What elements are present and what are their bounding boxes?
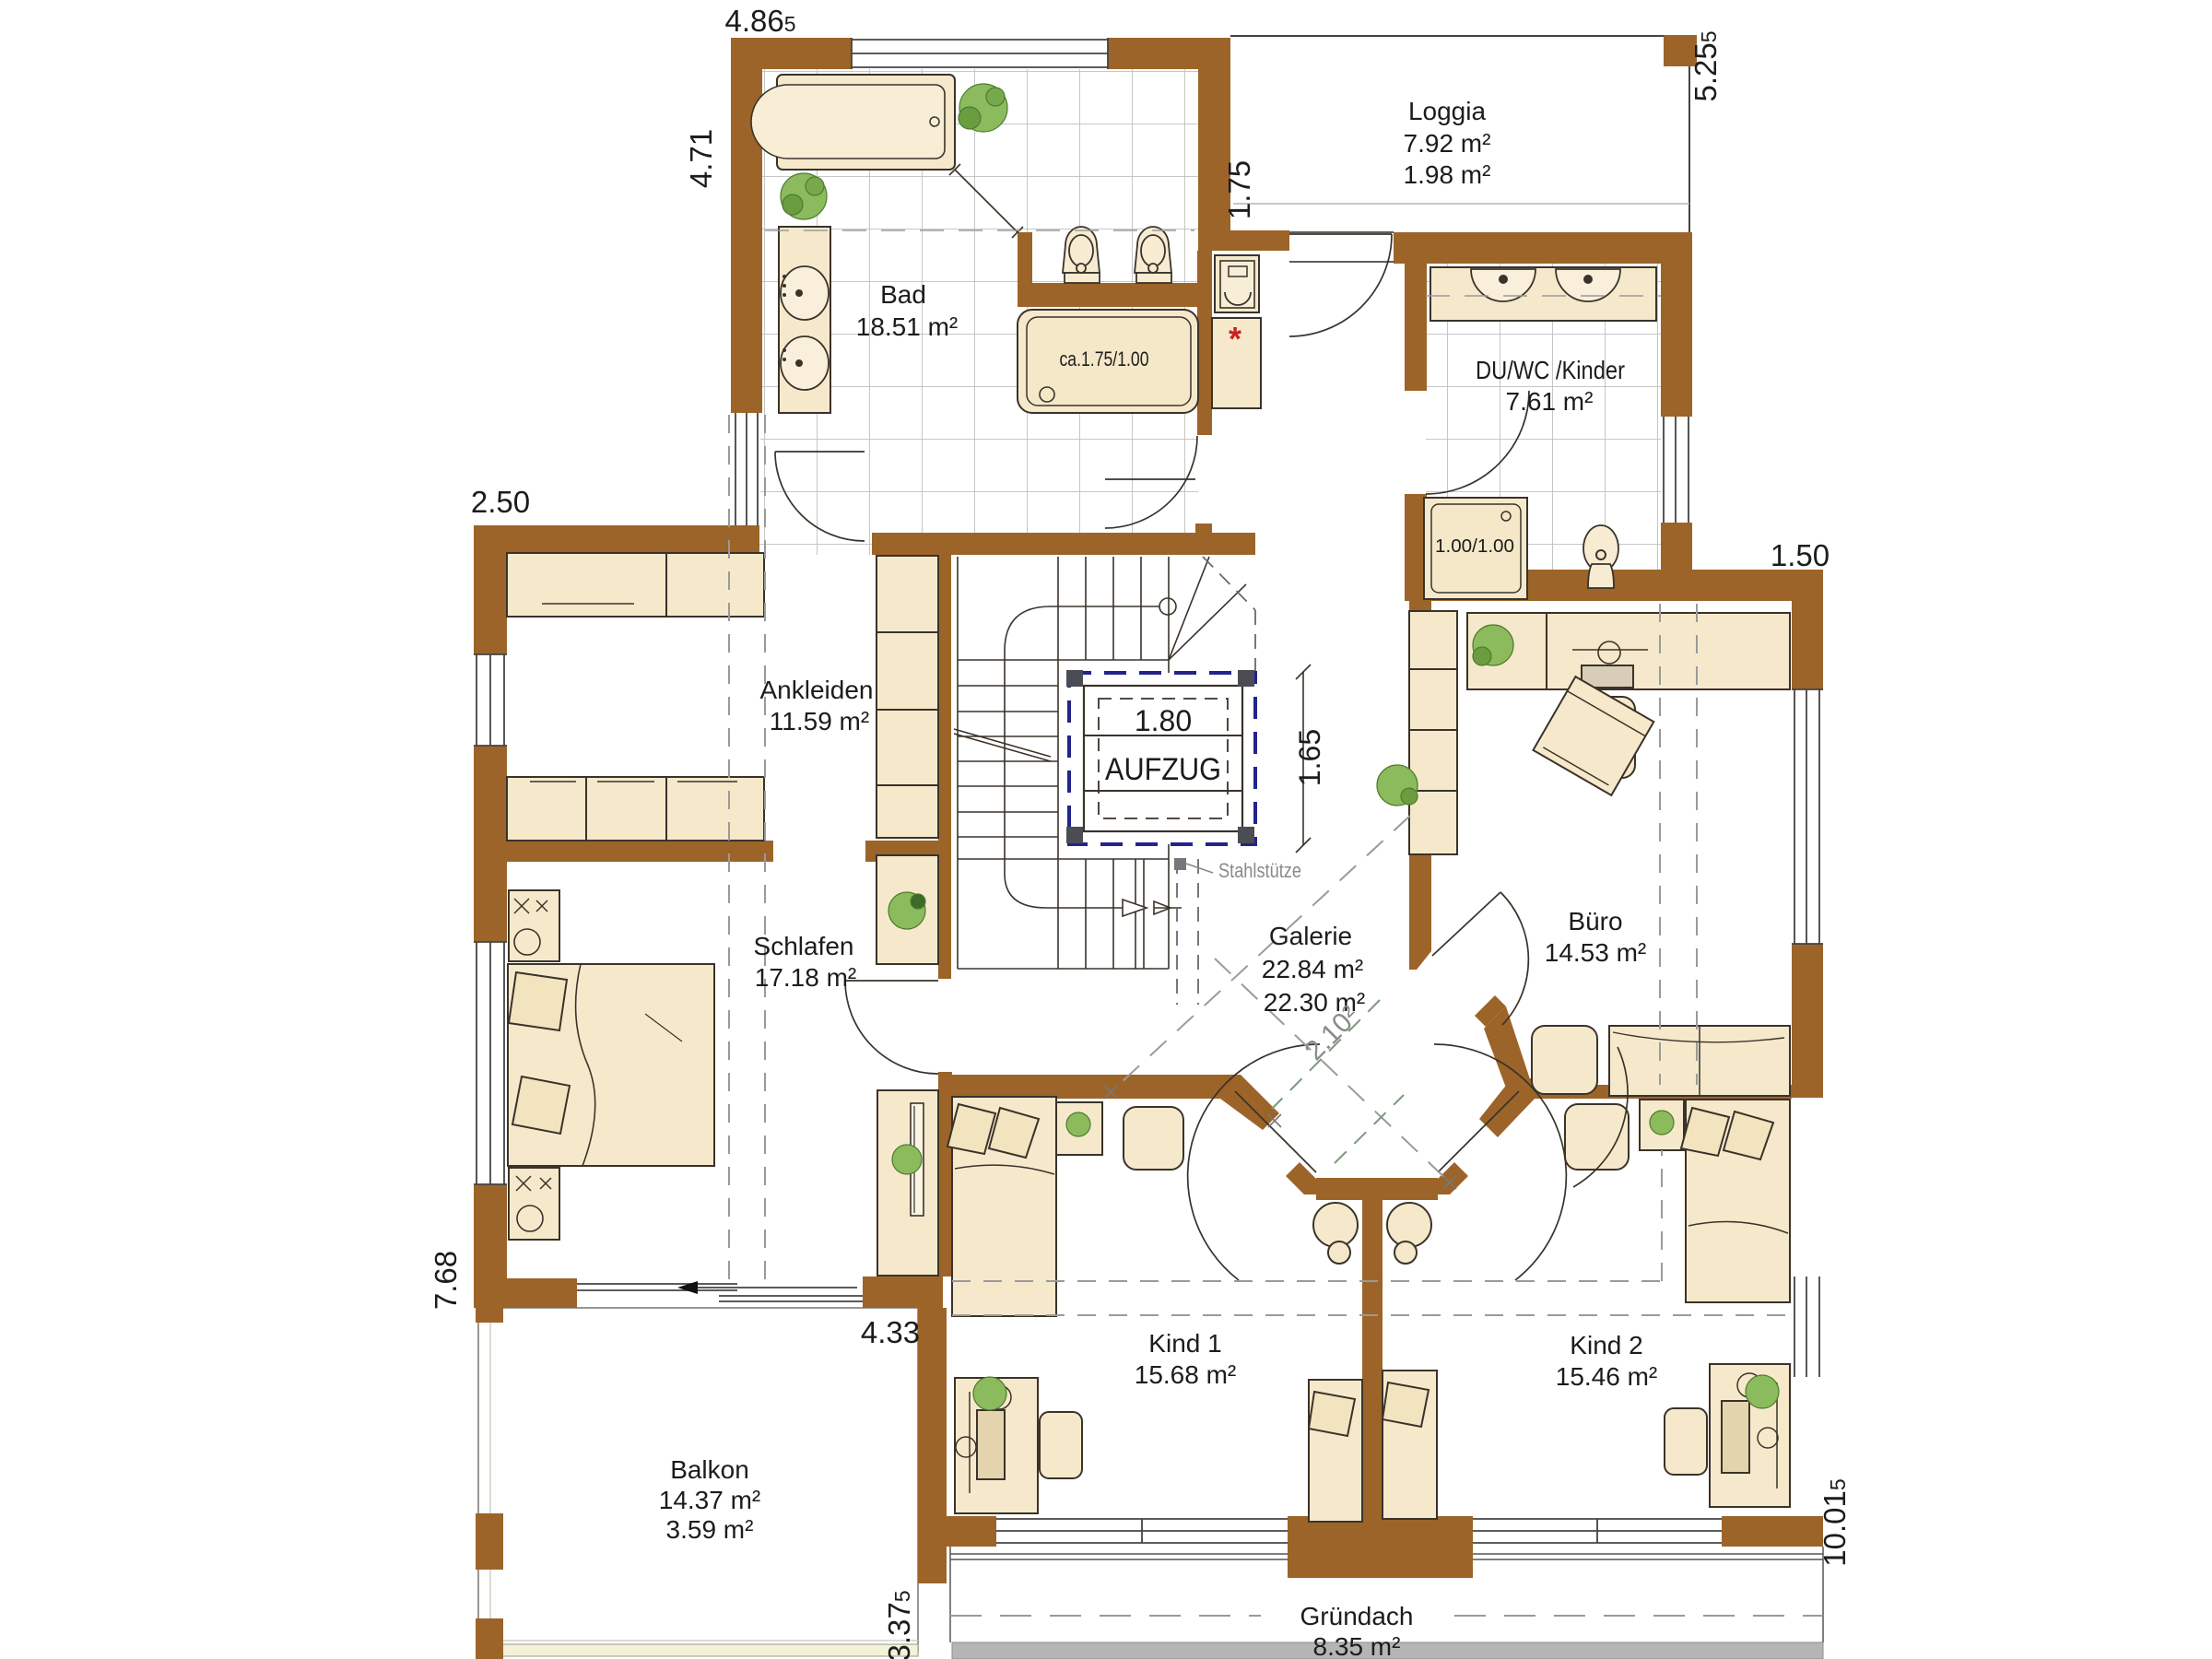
svg-text:14.37 m²: 14.37 m² xyxy=(659,1486,761,1514)
svg-text:15.68 m²: 15.68 m² xyxy=(1135,1360,1237,1389)
svg-text:3.59 m²: 3.59 m² xyxy=(666,1515,754,1544)
svg-text:17.18 m²: 17.18 m² xyxy=(755,963,857,992)
svg-text:2.50: 2.50 xyxy=(471,485,530,519)
svg-text:7.61 m²: 7.61 m² xyxy=(1506,387,1594,416)
svg-text:15.46 m²: 15.46 m² xyxy=(1556,1362,1658,1391)
svg-text:DU/WC /Kinder: DU/WC /Kinder xyxy=(1476,356,1625,384)
svg-text:Büro: Büro xyxy=(1568,907,1622,935)
svg-text:7.68: 7.68 xyxy=(429,1251,463,1310)
svg-text:Balkon: Balkon xyxy=(670,1455,749,1484)
svg-text:1.65: 1.65 xyxy=(1293,729,1326,786)
svg-text:8.35 m²: 8.35 m² xyxy=(1313,1632,1401,1659)
svg-text:4.71: 4.71 xyxy=(684,129,718,188)
svg-text:AUFZUG: AUFZUG xyxy=(1105,752,1221,787)
svg-text:Loggia: Loggia xyxy=(1408,97,1487,125)
svg-text:1.98 m²: 1.98 m² xyxy=(1404,160,1491,189)
svg-text:7.92 m²: 7.92 m² xyxy=(1404,129,1491,158)
svg-text:Bad: Bad xyxy=(880,280,926,309)
svg-text:1.75: 1.75 xyxy=(1222,160,1256,219)
svg-text:Stahlstütze: Stahlstütze xyxy=(1218,859,1301,882)
svg-text:11.59 m²: 11.59 m² xyxy=(770,707,869,735)
svg-text:4.33: 4.33 xyxy=(861,1315,920,1349)
svg-text:ca.1.75/1.00: ca.1.75/1.00 xyxy=(1060,347,1149,371)
svg-text:Schlafen: Schlafen xyxy=(754,932,854,960)
svg-text:22.84 m²: 22.84 m² xyxy=(1262,955,1364,983)
svg-text:1.00/1.00: 1.00/1.00 xyxy=(1435,536,1514,557)
svg-text:1.50: 1.50 xyxy=(1771,538,1830,572)
svg-text:Kind 1: Kind 1 xyxy=(1148,1329,1221,1358)
svg-text:Kind 2: Kind 2 xyxy=(1570,1331,1642,1359)
svg-text:18.51 m²: 18.51 m² xyxy=(856,312,959,341)
svg-text:*: * xyxy=(1229,320,1241,358)
svg-text:10.015: 10.015 xyxy=(1818,1478,1852,1566)
svg-text:14.53 m²: 14.53 m² xyxy=(1545,938,1647,967)
svg-text:Ankleiden: Ankleiden xyxy=(760,676,874,704)
svg-text:Gründach: Gründach xyxy=(1300,1602,1414,1630)
svg-text:1.80: 1.80 xyxy=(1135,704,1192,737)
svg-text:Galerie: Galerie xyxy=(1269,922,1352,950)
